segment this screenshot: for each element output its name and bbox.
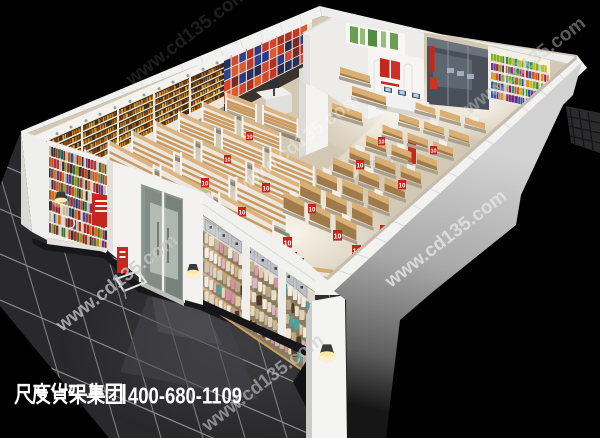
svg-text:10: 10 — [357, 162, 364, 169]
svg-text:10: 10 — [334, 233, 342, 240]
svg-text:10: 10 — [246, 134, 252, 140]
svg-text:10: 10 — [263, 185, 270, 192]
svg-text:10: 10 — [430, 148, 436, 154]
svg-text:400-680-1109: 400-680-1109 — [128, 383, 242, 409]
svg-text:10: 10 — [224, 157, 230, 163]
svg-text:10: 10 — [309, 206, 316, 213]
svg-text:10: 10 — [239, 209, 246, 216]
svg-text:10: 10 — [399, 182, 406, 189]
svg-text:10: 10 — [378, 139, 384, 145]
svg-text:10: 10 — [202, 180, 209, 187]
